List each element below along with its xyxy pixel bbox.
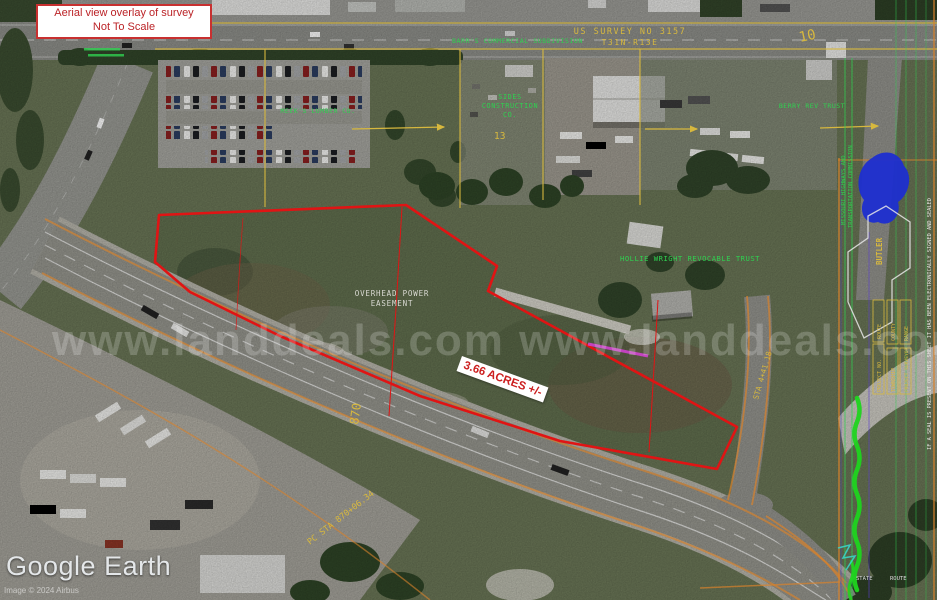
overlay-title-line2: Not To Scale [38, 21, 210, 35]
owner-sides-line2: CONSTRUCTION [482, 102, 538, 110]
field-route-label: ROUTE [877, 324, 883, 339]
owner-hollie-label: HOLLIE WRIGHT REVOCABLE TRUST [620, 254, 760, 263]
imagery-credit: Image © 2024 Airbus [4, 586, 79, 595]
easement-label-line1: OVERHEAD POWER [355, 289, 429, 298]
agency-label-line2: TRANSPORTATION COMMISSION [848, 145, 854, 228]
google-earth-logo: Google Earth [6, 551, 171, 582]
photo-grain [0, 0, 937, 600]
bottom-state-label: STATE [856, 576, 873, 582]
field-project-label: PROJECT NO. [877, 359, 883, 392]
overlay-title-line1: Aerial view overlay of survey [38, 7, 210, 21]
owner-lumber-label: MEEK'S LUMBER CO. [280, 107, 355, 115]
field-surveyor-label: PROJECT SURVEYOR [904, 348, 910, 392]
field-county-label: COUNTY [891, 323, 897, 341]
seal-note-label: IF A SEAL IS PRESENT ON THIS SHEET IT HA… [927, 198, 933, 450]
station-870-label: 870 [347, 402, 364, 425]
township-range-label: T31N-R13E [602, 38, 659, 47]
bottom-route-label: ROUTE [890, 576, 907, 582]
field-range-label: RANGE [904, 326, 910, 341]
aerial-photo-canvas: US SURVEY NO 3157 T31N-R13E 10 13 BARR'S… [0, 0, 937, 600]
satellite-imagery [0, 0, 937, 600]
lot-number-label: 13 [494, 131, 505, 142]
agency-label-line1: MISSOURI HIGHWAYS AND [841, 155, 847, 225]
aerial-survey-overlay-screenshot: US SURVEY NO 3157 T31N-R13E 10 13 BARR'S… [0, 0, 937, 600]
owner-sides-line1: SIDES [498, 93, 521, 101]
field-township-label: TOWNSHIP [891, 368, 897, 392]
owner-sides-line3: CO. [503, 111, 517, 119]
overlay-title-box: Aerial view overlay of survey Not To Sca… [36, 4, 212, 39]
us-survey-label: US SURVEY NO 3157 [574, 27, 687, 37]
easement-label-line2: EASEMENT [371, 299, 414, 308]
owner-berry-label: BERRY REV TRUST [779, 102, 845, 110]
subdivision-label: BARR'S COMMERCIAL SUBDIVISION [452, 37, 583, 45]
county-name-label: BUTLER [875, 237, 884, 265]
